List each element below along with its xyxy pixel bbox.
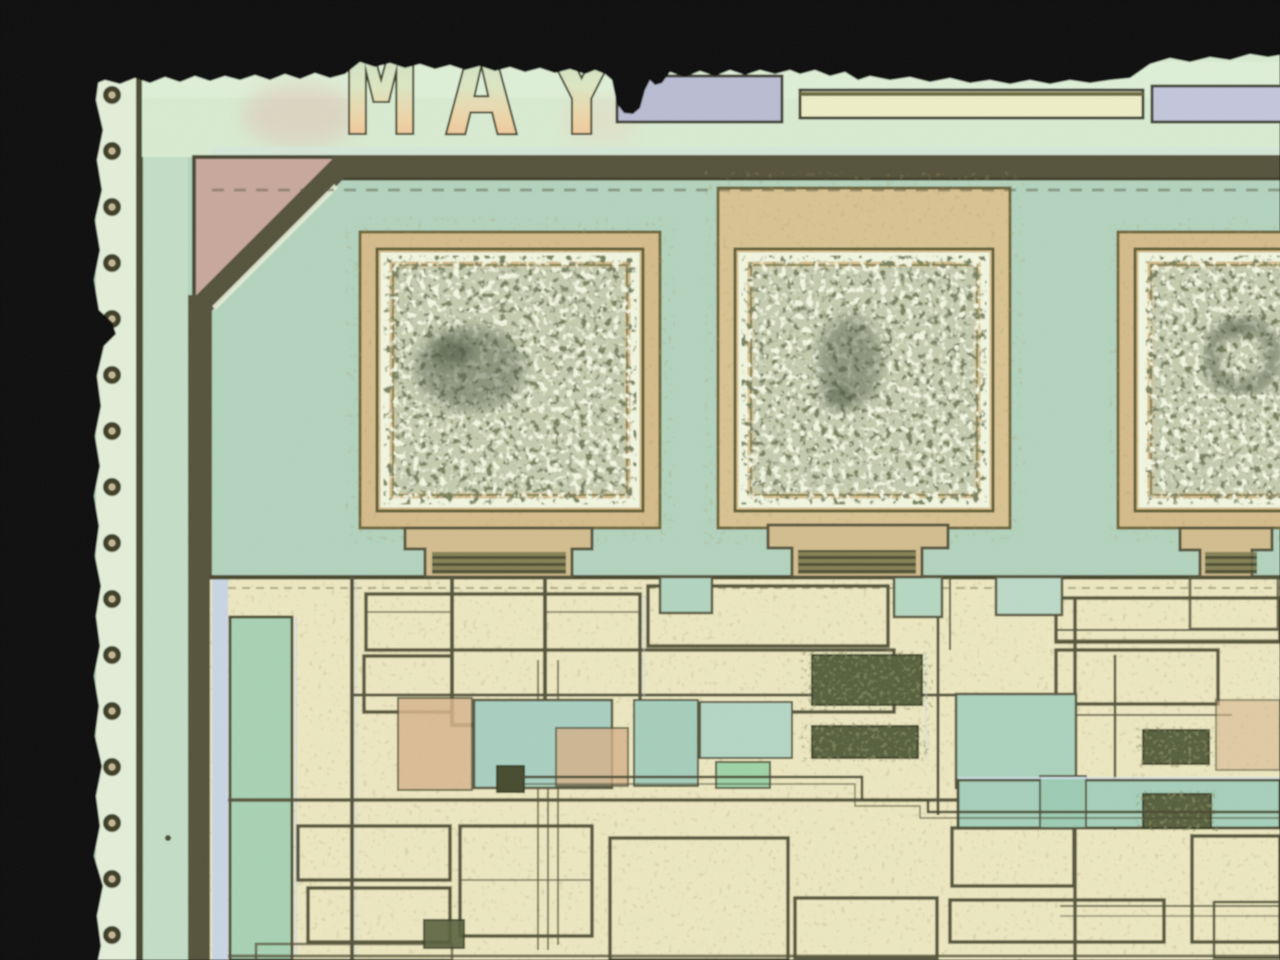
film-grain-overlay	[0, 0, 1280, 960]
die-photo-stage: MAY	[0, 0, 1280, 960]
ic-die-photomicrograph: MAY	[0, 0, 1280, 960]
